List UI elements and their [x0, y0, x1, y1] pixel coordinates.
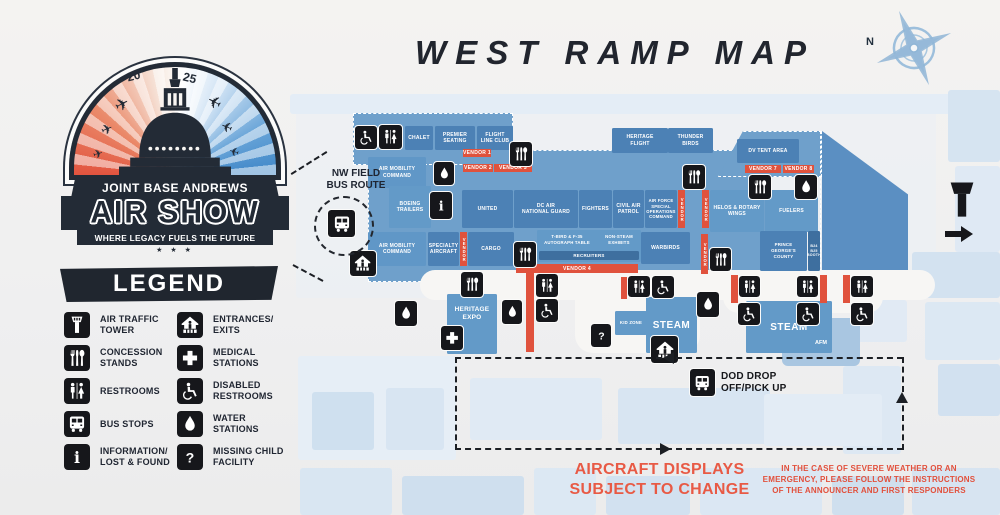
disabled-restroom-icon [738, 303, 760, 325]
red-divider [820, 275, 827, 303]
zone-chalet: CHALET [405, 126, 433, 150]
west-ramp-map-page: CHALET PREMIER SEATING FLIGHT LINE CLUB … [0, 0, 1000, 515]
concession-icon [510, 142, 532, 166]
disabled-restroom-icon [652, 276, 674, 298]
restroom-icon [851, 276, 873, 297]
information-icon [430, 192, 452, 219]
legend-item-label: INFORMATION/ LOST & FOUND [100, 446, 170, 467]
zone-flight-line-club: FLIGHT LINE CLUB [477, 126, 513, 150]
background-shape [300, 468, 392, 515]
zone-boeing-trailers: BOEING TRAILERS [389, 186, 431, 228]
compass-north-label: N [866, 36, 874, 48]
red-divider [526, 271, 534, 352]
vendor-8-bar: VENDOR 8 [783, 165, 814, 173]
compass-rose-icon [872, 6, 956, 90]
background-shape [312, 392, 374, 450]
disabled-restroom-icon [177, 378, 203, 404]
aircraft-displays-note: AIRCRAFT DISPLAYS SUBJECT TO CHANGE [552, 460, 767, 500]
page-title: WEST RAMP MAP [395, 34, 835, 72]
route-left [455, 357, 457, 450]
afm-label: AFM [815, 340, 827, 346]
dod-drop-off-label: DOD DROP OFF/PICK UP [721, 371, 787, 394]
background-shape [948, 90, 1000, 162]
air-traffic-tower-icon [941, 176, 983, 224]
zone-civil-air-patrol: CIVIL AIR PATROL [613, 190, 644, 228]
legend-item-label: MISSING CHILD FACILITY [213, 446, 284, 467]
legend-item: DISABLED RESTROOMS [177, 378, 284, 404]
water-icon [177, 411, 203, 437]
background-shape [764, 394, 882, 446]
disabled-restroom-icon [536, 299, 558, 322]
entrance-icon [177, 312, 203, 338]
legend-item-label: DISABLED RESTROOMS [213, 380, 273, 401]
zone-warbirds: WARBIRDS [641, 232, 690, 264]
zone-specialty-aircraft: SPECIALTY AIRCRAFT [428, 232, 459, 266]
route-bottom [455, 448, 903, 450]
restroom-icon [379, 125, 402, 149]
legend-item-label: WATER STATIONS [213, 413, 259, 434]
concession-icon [514, 242, 536, 267]
legend-item: WATER STATIONS [177, 411, 284, 437]
legend-item-label: CONCESSION STANDS [100, 347, 163, 368]
zone-fighters: FIGHTERS [579, 190, 612, 228]
logo-year-left: 20 [126, 69, 142, 84]
route-arrow-right [660, 443, 671, 455]
missing-child-icon [177, 444, 203, 470]
vendor-2-bar: VENDOR 2 [463, 164, 493, 172]
zone-air-mobility-command-south: AIR MOBILITY COMMAND [368, 232, 426, 266]
background-shape [925, 302, 1000, 360]
logo-tagline-text: WHERE LEGACY FUELS THE FUTURE [95, 233, 256, 243]
bus-stop-icon [64, 411, 90, 437]
zone-premier-seating: PREMIER SEATING [435, 126, 475, 150]
capitol-dome-icon [118, 68, 232, 180]
air-traffic-tower-icon [64, 312, 90, 338]
route-right [902, 357, 904, 450]
restroom-icon [628, 276, 650, 297]
zone-kid-zone: KID ZONE [615, 311, 647, 335]
logo-airshow-text: AIR SHOW [90, 195, 259, 231]
water-icon [434, 162, 454, 185]
zone-cargo: CARGO [468, 232, 514, 266]
zone-non-steam-exhibits: NON-STEAM EXHIBITS [597, 230, 641, 250]
bus-stop-icon [690, 369, 715, 396]
zone-af-special-operations: AIR FORCE SPECIAL OPERATIONS COMMAND [645, 190, 677, 228]
background-shape [470, 378, 602, 440]
disabled-restroom-icon [355, 126, 377, 149]
concession-icon [710, 248, 731, 271]
legend-item-label: ENTRANCES/ EXITS [213, 314, 274, 335]
water-icon [697, 292, 719, 317]
logo-airshow-panel: AIR SHOW [61, 196, 289, 230]
legend-banner: LEGEND [60, 266, 278, 302]
restroom-icon [797, 276, 818, 297]
legend-item: MEDICAL STATIONS [177, 345, 284, 371]
medical-icon [441, 326, 463, 350]
zone-united: UNITED [462, 190, 513, 228]
restroom-icon [739, 276, 760, 297]
weather-emergency-note: IN THE CASE OF SEVERE WEATHER OR AN EMER… [760, 463, 978, 497]
background-shape [618, 388, 770, 444]
concession-icon [683, 165, 705, 189]
legend-column-2: ENTRANCES/ EXITS MEDICAL STATIONS DISABL… [177, 312, 284, 470]
restroom-icon [536, 274, 558, 297]
legend-item-label: MEDICAL STATIONS [213, 347, 259, 368]
legend-item-label: RESTROOMS [100, 386, 160, 397]
medical-icon [177, 345, 203, 371]
logo-tagline-ribbon: WHERE LEGACY FUELS THE FUTURE [77, 230, 273, 245]
nw-field-bus-route-label: NW FIELD BUS ROUTE [313, 168, 399, 192]
water-icon [795, 175, 817, 199]
vendor-1-bar: VENDOR 1 [463, 149, 491, 157]
legend-column-1: AIR TRAFFIC TOWER CONCESSION STANDS REST… [64, 312, 170, 470]
red-divider [731, 275, 738, 303]
zone-thunderbirds: THUNDER BIRDS [668, 128, 713, 153]
entrance-icon [350, 251, 376, 276]
legend-item-label: BUS STOPS [100, 419, 154, 430]
vendor-strip-vertical: VENDOR [460, 232, 467, 266]
zone-b24-b25-booth: B24 B25 BOOTH [808, 231, 820, 271]
route-arrow-left [663, 352, 674, 364]
bus-stop-icon [328, 210, 355, 237]
zone-dv-tent-area: DV TENT AREA [737, 139, 799, 163]
zone-autograph-table: T-BIRD & F-35 AUTOGRAPH TABLE [537, 230, 597, 250]
legend-item: ENTRANCES/ EXITS [177, 312, 284, 338]
legend-item: MISSING CHILD FACILITY [177, 444, 284, 470]
legend-item-label: AIR TRAFFIC TOWER [100, 314, 159, 335]
vendor-7-bar: VENDOR 7 [745, 165, 781, 173]
concession-icon [749, 175, 771, 199]
red-divider [843, 275, 850, 303]
information-icon [64, 444, 90, 470]
legend-item: BUS STOPS [64, 411, 170, 437]
restroom-icon [64, 378, 90, 404]
air-show-logo: 20 25 ✈ ✈ ✈ ✈ ✈ ✈ JOINT BASE ANDREWS AIR… [55, 26, 305, 261]
water-icon [502, 300, 522, 324]
water-icon [395, 301, 417, 326]
disabled-restroom-icon [851, 303, 873, 325]
legend-item: CONCESSION STANDS [64, 345, 170, 371]
legend-item: RESTROOMS [64, 378, 170, 404]
zone-prince-georges-county: PRINCE GEORGE'S COUNTY [760, 231, 807, 271]
disabled-restroom-icon [797, 303, 819, 325]
zone-recruiters: RECRUITERS [539, 251, 639, 260]
vendor-strip-vertical: VENDOR [702, 190, 709, 228]
exit-arrow-icon [943, 224, 975, 244]
legend-item: INFORMATION/ LOST & FOUND [64, 444, 170, 470]
legend-title: LEGEND [113, 270, 225, 298]
background-shape [402, 476, 524, 515]
route-arrow-up [896, 392, 908, 403]
vendor-strip-vertical: VENDOR [678, 190, 685, 228]
legend-item: AIR TRAFFIC TOWER [64, 312, 170, 338]
background-shape [386, 388, 444, 450]
logo-stars: ★ ★ ★ [55, 246, 295, 254]
zone-heritage-flight: HERITAGE FLIGHT [612, 128, 668, 153]
vendor-strip-vertical: VENDOR [701, 234, 708, 274]
logo-name-text: JOINT BASE ANDREWS [102, 181, 248, 195]
red-divider [621, 277, 627, 299]
ramp-boundary-dashed [820, 131, 821, 282]
zone-dc-air-national-guard: DC AIR NATIONAL GUARD [514, 190, 578, 228]
zone-autograph-container: T-BIRD & F-35 AUTOGRAPH TABLE NON-STEAM … [537, 230, 641, 262]
concession-icon [64, 345, 90, 371]
logo-year-right: 25 [182, 71, 198, 86]
background-shape [938, 364, 1000, 416]
route-top [455, 357, 903, 359]
missing-child-icon [591, 324, 611, 347]
concession-icon [461, 272, 483, 297]
